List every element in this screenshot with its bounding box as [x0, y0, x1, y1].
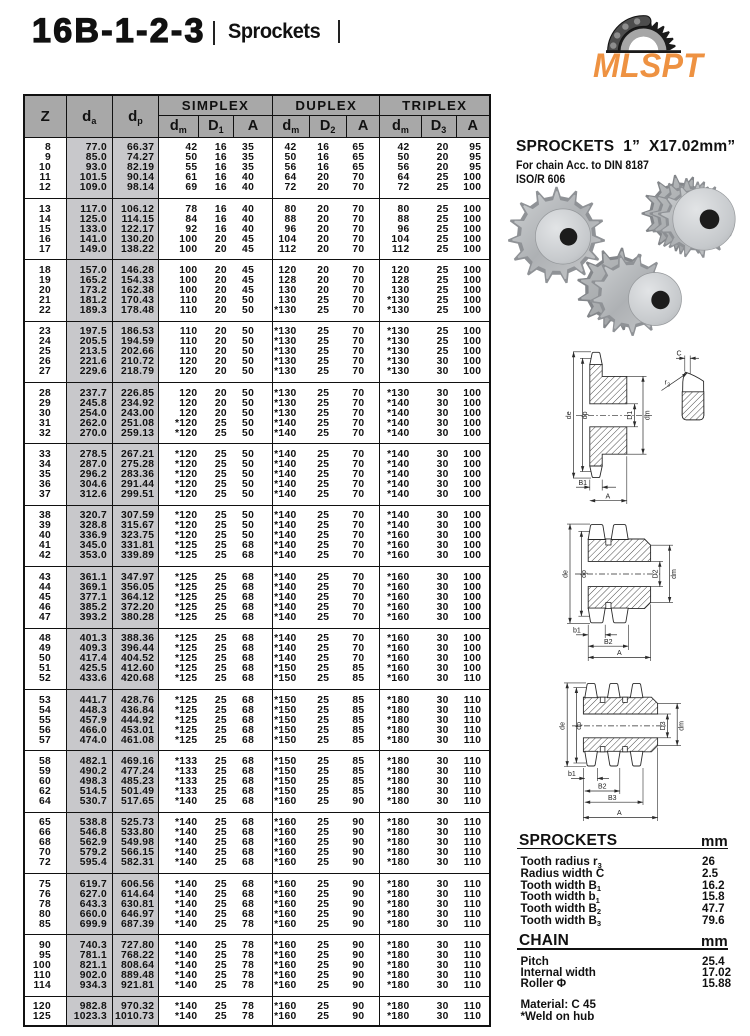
svg-text:D1: D1	[627, 411, 634, 420]
svg-text:de: de	[560, 722, 567, 730]
svg-text:C: C	[677, 351, 682, 358]
svg-text:b1: b1	[573, 627, 581, 634]
svg-text:dm: dm	[671, 569, 678, 579]
svg-text:dp: dp	[582, 411, 589, 419]
svg-text:de: de	[566, 411, 573, 419]
svg-text:dm: dm	[645, 410, 652, 420]
svg-text:dp: dp	[581, 570, 588, 578]
svg-text:D3: D3	[660, 721, 667, 730]
svg-text:B3: B3	[608, 795, 617, 802]
svg-text:A: A	[606, 494, 611, 501]
svg-text:3: 3	[667, 383, 670, 389]
svg-text:A: A	[617, 650, 622, 657]
svg-text:B2: B2	[604, 639, 613, 646]
svg-text:B2: B2	[598, 784, 607, 791]
svg-text:de: de	[562, 570, 569, 578]
svg-text:dm: dm	[679, 721, 686, 731]
svg-text:A: A	[617, 810, 622, 817]
svg-text:D2: D2	[652, 569, 659, 578]
svg-text:B1: B1	[579, 480, 588, 487]
svg-text:b1: b1	[568, 771, 576, 778]
svg-text:dp: dp	[576, 722, 583, 730]
